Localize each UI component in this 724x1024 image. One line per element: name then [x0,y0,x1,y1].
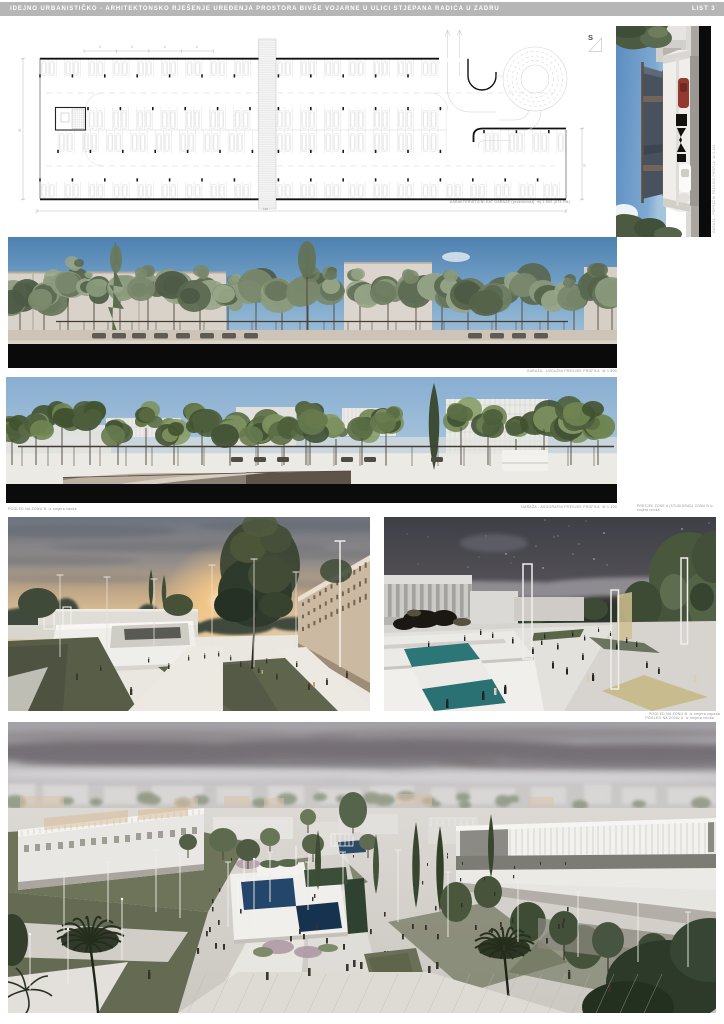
svg-text:5: 5 [99,45,101,49]
svg-text:35: 35 [17,128,21,132]
svg-text:5: 5 [196,45,198,49]
svg-text:5: 5 [164,45,166,49]
svg-text:125: 125 [263,207,268,211]
svg-text:5: 5 [131,45,133,49]
svg-text:57: 57 [582,163,586,167]
